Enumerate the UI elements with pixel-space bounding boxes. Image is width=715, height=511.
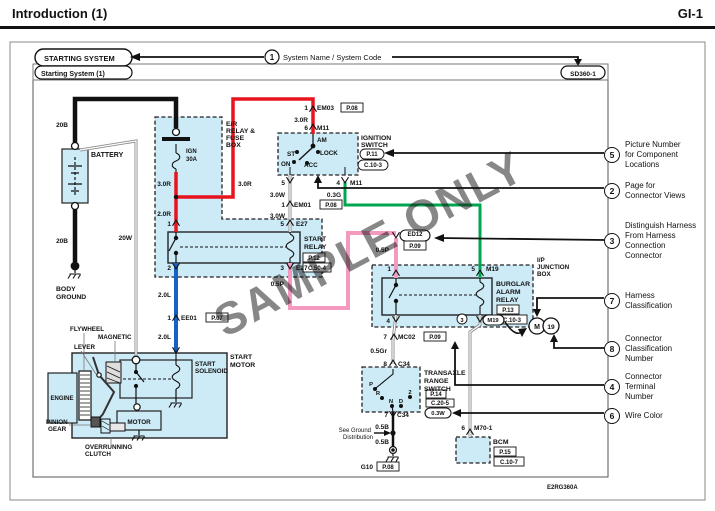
diagram-label: 2 bbox=[408, 390, 411, 396]
diagram-label: 0.5P bbox=[271, 281, 285, 288]
wiring-diagram: SAMPLE ONLY STARTING SYSTEMStarting Syst… bbox=[0, 0, 715, 511]
diagram-label: 6 bbox=[461, 425, 465, 432]
diagram-label: MC02 bbox=[398, 334, 416, 341]
diagram-label: 3.0W bbox=[270, 192, 286, 199]
diagram-label: M11 bbox=[317, 125, 330, 132]
diagram-label: M19 bbox=[486, 266, 499, 273]
diagram-label: 0.3G bbox=[327, 192, 341, 199]
diagram-label: 0.3W bbox=[431, 411, 445, 417]
diagram-label: BATTERY bbox=[91, 152, 124, 159]
diagram-label: EM01 bbox=[294, 202, 311, 209]
diagram-label: 1 bbox=[304, 105, 308, 112]
diagram-label: START bbox=[230, 354, 253, 361]
diagram-label: P.08 bbox=[325, 203, 337, 209]
diagram-label: 20B bbox=[56, 122, 68, 129]
diagram-label: BOX bbox=[226, 142, 241, 149]
diagram-label: BODY bbox=[56, 286, 76, 293]
body-ground-icon bbox=[68, 262, 81, 278]
diagram-label: M bbox=[534, 324, 540, 331]
diagram-label: 3.0R bbox=[157, 181, 171, 188]
diagram-label: EM03 bbox=[317, 105, 334, 112]
diagram-label: 7 bbox=[384, 412, 388, 419]
diagram-label: C.50-4 bbox=[308, 266, 327, 272]
diagram-label: FUSE bbox=[226, 135, 245, 142]
diagram-label: 19 bbox=[547, 324, 555, 331]
diagram-label: M70-1 bbox=[474, 425, 493, 432]
diagram-label: C.20-5 bbox=[431, 401, 450, 407]
diagram-label: START bbox=[304, 236, 327, 243]
diagram-label: E27 bbox=[296, 221, 308, 228]
diagram-label: BCM bbox=[493, 439, 509, 446]
diagram-label: 7 bbox=[383, 334, 387, 341]
diagram-label: ALARM bbox=[496, 289, 521, 296]
diagram-label: EE01 bbox=[181, 315, 197, 322]
diagram-label: 30A bbox=[186, 157, 198, 163]
diagram-label: 20W bbox=[119, 235, 133, 242]
diagram-label: 3.0R bbox=[294, 117, 308, 124]
diagram-label: I/P bbox=[537, 257, 545, 264]
diagram-label: SWITCH bbox=[361, 142, 388, 149]
diagram-label: 4 bbox=[336, 180, 340, 187]
diagram-label: RANGE bbox=[424, 378, 449, 385]
diagram-label: ACC bbox=[304, 162, 318, 169]
diagram-label: MAGNETIC bbox=[98, 334, 132, 341]
diagram-label: LEVER bbox=[74, 344, 95, 351]
diagram-label: MOTOR bbox=[230, 362, 255, 369]
diagram-label: JUNCTION bbox=[537, 264, 570, 271]
diagram-label: P.09 bbox=[429, 335, 441, 341]
diagram-label: 0.5B bbox=[375, 424, 389, 431]
diagram-label: N bbox=[389, 399, 393, 405]
diagram-label: BURGLAR bbox=[496, 281, 530, 288]
diagram-label: C.10-7 bbox=[500, 460, 519, 466]
diagram-label: ST bbox=[287, 151, 295, 158]
burglar-alarm-relay-box bbox=[382, 278, 492, 315]
diagram-label: Distribution bbox=[343, 435, 373, 441]
diagram-label: START bbox=[195, 361, 216, 368]
diagram-label: AM bbox=[317, 137, 327, 144]
diagram-label: 5 bbox=[280, 221, 284, 228]
diagram-label: CLUTCH bbox=[85, 451, 111, 458]
diagram-label: P bbox=[369, 382, 373, 388]
diagram-label: P.13 bbox=[502, 308, 514, 314]
diagram-label: C.10-3 bbox=[503, 318, 522, 324]
diagram-label: G10 bbox=[361, 464, 374, 471]
diagram-label: GROUND bbox=[56, 294, 86, 301]
diagram-label: 20B bbox=[56, 238, 68, 245]
diagram-label: C34 bbox=[398, 361, 410, 368]
diagram-label: ON bbox=[281, 161, 291, 168]
diagram-label: STARTING SYSTEM bbox=[44, 54, 115, 63]
diagram-label: OVERRUNNING bbox=[85, 444, 132, 451]
diagram-label: 1 bbox=[387, 266, 391, 273]
diagram-label: E2RG360A bbox=[547, 485, 578, 491]
diagram-label: ED12 bbox=[407, 232, 423, 238]
diagram-label: 4 bbox=[386, 318, 390, 325]
diagram-label: IGNITION bbox=[361, 135, 391, 142]
diagram-label: 5 bbox=[281, 180, 285, 187]
diagram-label: 6 bbox=[304, 125, 308, 132]
diagram-label: MOTOR bbox=[127, 419, 151, 426]
diagram-label: ENGINE bbox=[50, 396, 73, 402]
diagram-label: RELAY & bbox=[226, 128, 255, 135]
diagram-label: P.09 bbox=[409, 244, 421, 250]
diagram-label: 2.0L bbox=[158, 334, 171, 341]
diagram-label: PINION bbox=[46, 419, 68, 426]
diagram-label: See Ground bbox=[339, 428, 371, 434]
diagram-label: 3.0W bbox=[270, 213, 286, 220]
manual-page: Introduction (1) GI-1 bbox=[0, 0, 715, 511]
diagram-label: System Name / System Code bbox=[283, 53, 381, 62]
diagram-label: Starting System (1) bbox=[41, 71, 105, 78]
diagram-label: SOLENOID bbox=[195, 368, 228, 375]
diagram-label: 3 bbox=[280, 265, 284, 272]
diagram-label: IGN bbox=[186, 149, 197, 155]
diagram-label: P.08 bbox=[382, 465, 394, 471]
diagram-label: GEAR bbox=[48, 426, 67, 433]
diagram-label: RELAY bbox=[496, 297, 519, 304]
diagram-label: 1 bbox=[281, 202, 285, 209]
diagram-label: FLYWHEEL bbox=[70, 326, 104, 333]
diagram-label: BOX bbox=[537, 271, 551, 278]
diagram-label: M19 bbox=[487, 318, 499, 324]
diagram-label: P.12 bbox=[308, 256, 320, 262]
diagram-label: TRANSAXLE bbox=[424, 370, 466, 377]
diagram-label: RELAY bbox=[304, 244, 327, 251]
diagram-label: 2.0L bbox=[158, 292, 171, 299]
diagram-label: P.15 bbox=[499, 450, 511, 456]
start-relay-box bbox=[168, 232, 300, 263]
diagram-label: C34 bbox=[397, 412, 409, 419]
diagram-label: 2 bbox=[167, 265, 171, 272]
bcm-box bbox=[456, 437, 490, 463]
diagram-label: P.14 bbox=[430, 392, 442, 398]
diagram-label: 5 bbox=[471, 266, 475, 273]
diagram-label: M11 bbox=[350, 180, 363, 187]
diagram-label: 1 bbox=[270, 53, 275, 62]
diagram-label: 1 bbox=[167, 315, 171, 322]
diagram-label: P.08 bbox=[346, 106, 358, 112]
diagram-label: LOCK bbox=[320, 150, 338, 157]
diagram-label: 8 bbox=[383, 361, 387, 368]
red-junction-dot bbox=[174, 195, 178, 199]
diagram-label: P.07 bbox=[211, 316, 223, 322]
diagram-label: E/R bbox=[226, 121, 237, 128]
diagram-label: 0.5Gr bbox=[370, 348, 387, 355]
diagram-label: P.11 bbox=[366, 152, 378, 158]
diagram-label: 3.0R bbox=[238, 181, 252, 188]
diagram-label: 1 bbox=[167, 221, 171, 228]
diagram-label: E27 bbox=[296, 265, 308, 272]
diagram-label: SD360-1 bbox=[570, 71, 596, 78]
diagram-label: 0.5P bbox=[376, 247, 390, 254]
diagram-label: C.10-3 bbox=[364, 163, 383, 169]
diagram-label: 0.5B bbox=[375, 439, 389, 446]
diagram-label: 2.0R bbox=[157, 211, 171, 218]
diagram-label: D bbox=[399, 399, 403, 405]
